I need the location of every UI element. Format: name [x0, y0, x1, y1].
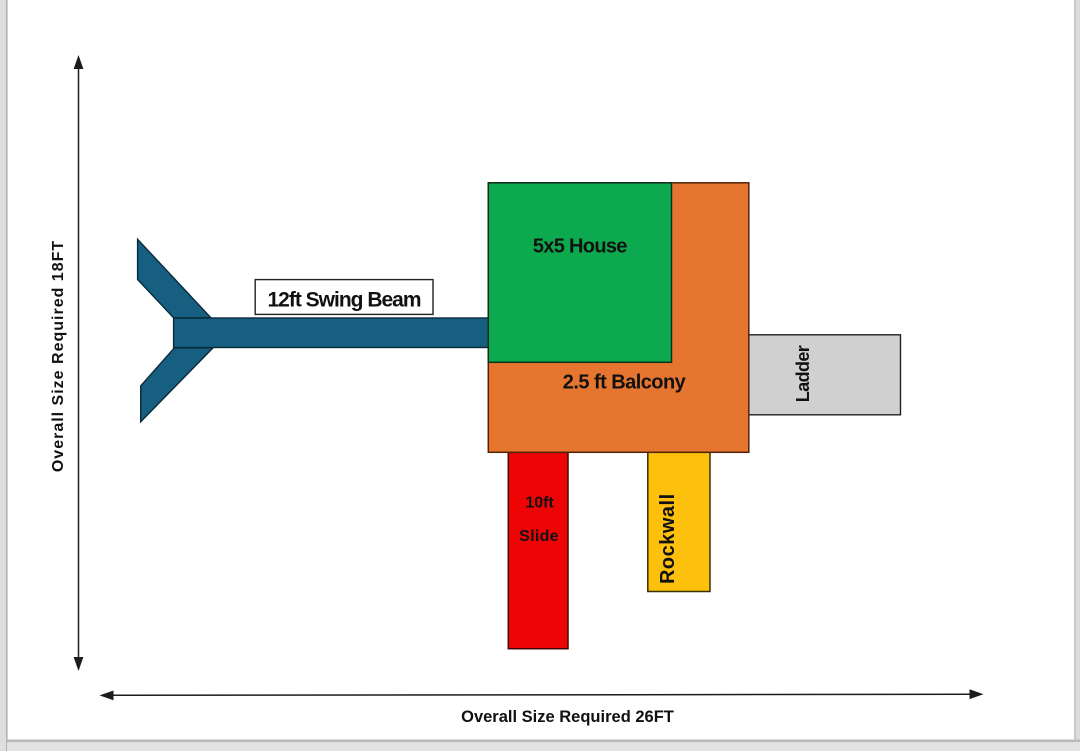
svg-text:Ladder: Ladder: [793, 345, 813, 402]
svg-text:2.5 ft Balcony: 2.5 ft Balcony: [563, 371, 687, 393]
svg-text:12ft Swing Beam: 12ft Swing Beam: [267, 288, 420, 311]
svg-text:Overall Size Required 18FT: Overall Size Required 18FT: [50, 240, 67, 472]
svg-text:Slide: Slide: [519, 528, 559, 545]
svg-text:Rockwall: Rockwall: [657, 493, 679, 584]
svg-text:Overall Size Required 26FT: Overall Size Required 26FT: [461, 708, 674, 726]
svg-text:5x5 House: 5x5 House: [533, 236, 627, 258]
svg-text:10ft: 10ft: [525, 495, 554, 512]
